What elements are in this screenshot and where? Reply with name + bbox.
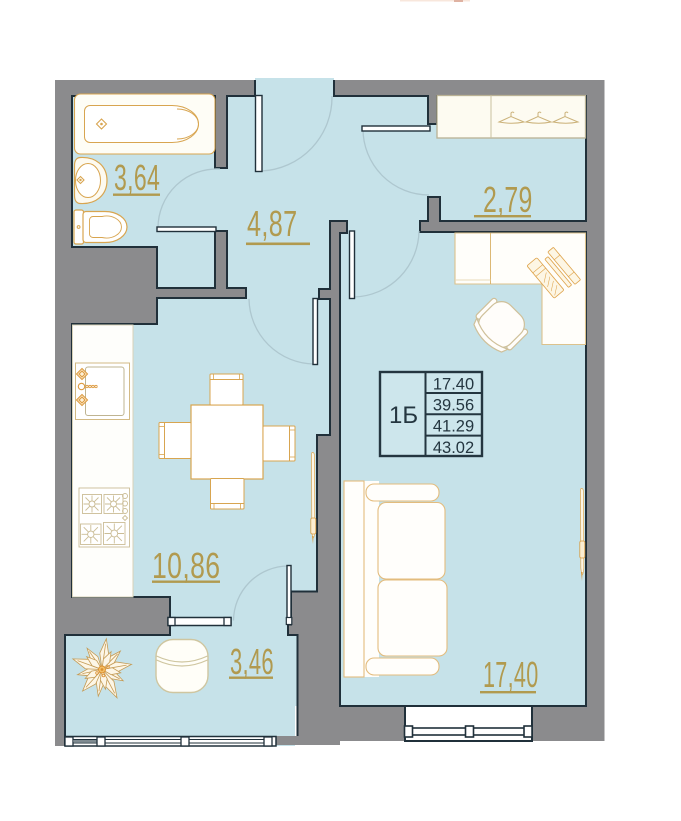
svg-text:3,64: 3,64 (114, 159, 160, 198)
svg-text:4,87: 4,87 (247, 204, 297, 245)
svg-text:10,86: 10,86 (152, 545, 220, 586)
svg-text:2,79: 2,79 (483, 179, 533, 220)
svg-text:17,40: 17,40 (483, 655, 539, 695)
svg-text:41.29: 41.29 (433, 418, 474, 436)
svg-text:43.02: 43.02 (433, 439, 474, 457)
svg-text:1Б: 1Б (389, 402, 418, 429)
svg-text:3,46: 3,46 (230, 643, 274, 683)
svg-text:39.56: 39.56 (433, 396, 474, 414)
svg-text:17.40: 17.40 (433, 375, 474, 393)
